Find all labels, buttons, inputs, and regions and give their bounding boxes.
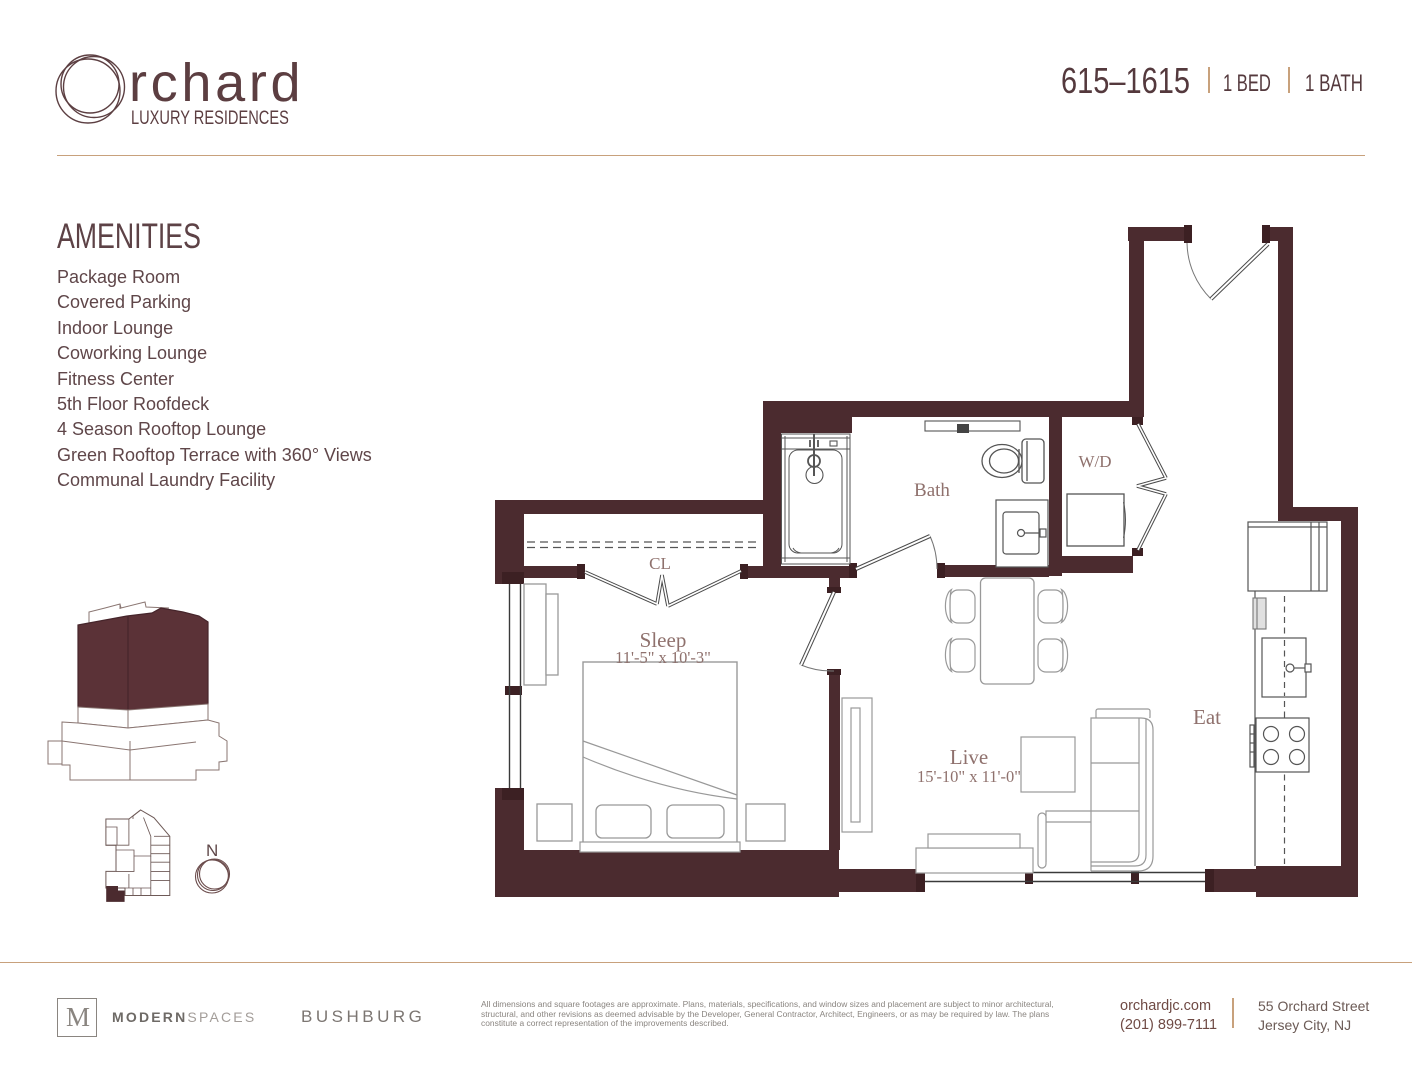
svg-text:15'-10" x 11'-0": 15'-10" x 11'-0" [917, 767, 1021, 786]
svg-text:Bath: Bath [914, 480, 950, 501]
svg-text:11'-5" x 10'-3": 11'-5" x 10'-3" [615, 648, 711, 667]
svg-text:W/D: W/D [1078, 452, 1111, 471]
svg-text:CL: CL [649, 554, 671, 573]
svg-text:Live: Live [950, 745, 988, 769]
svg-text:Eat: Eat [1193, 705, 1221, 729]
